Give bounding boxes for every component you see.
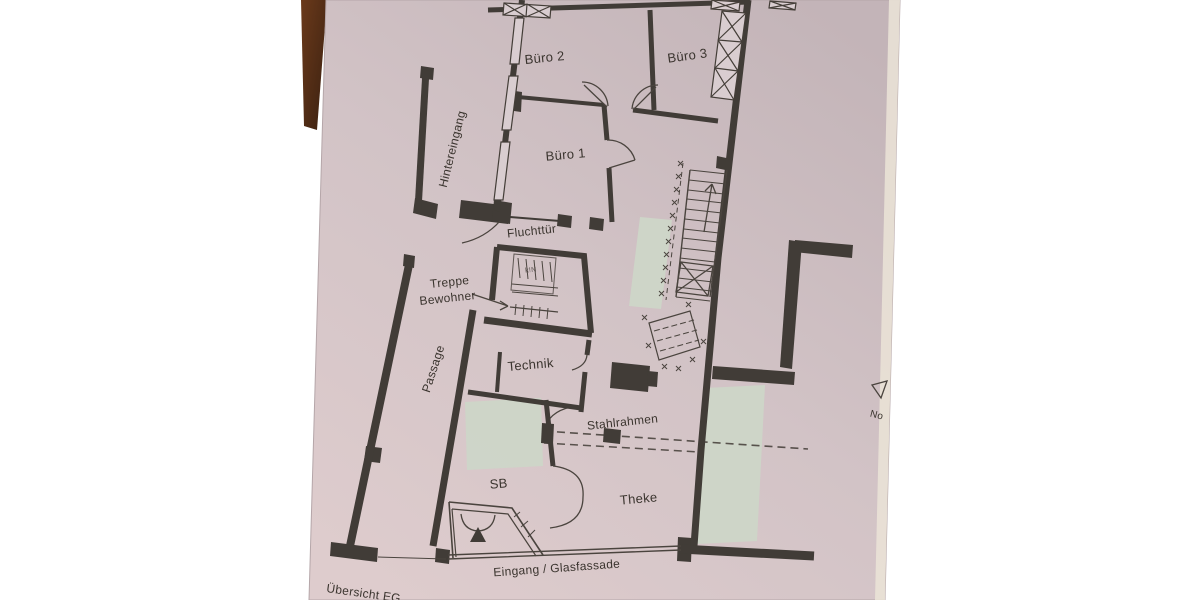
window-top-mid: [711, 0, 740, 11]
floor-plan-photo: Büro 2 Büro 3 Büro 1 Hintereingang Fluch…: [0, 0, 1200, 600]
window-top-right: [769, 1, 796, 10]
highlight-area-sb: [465, 398, 543, 470]
window-top-left: [503, 3, 551, 18]
counter-block: [610, 362, 650, 392]
room-label-sb: SB: [489, 475, 508, 492]
stair-note: k!N: [525, 266, 537, 274]
